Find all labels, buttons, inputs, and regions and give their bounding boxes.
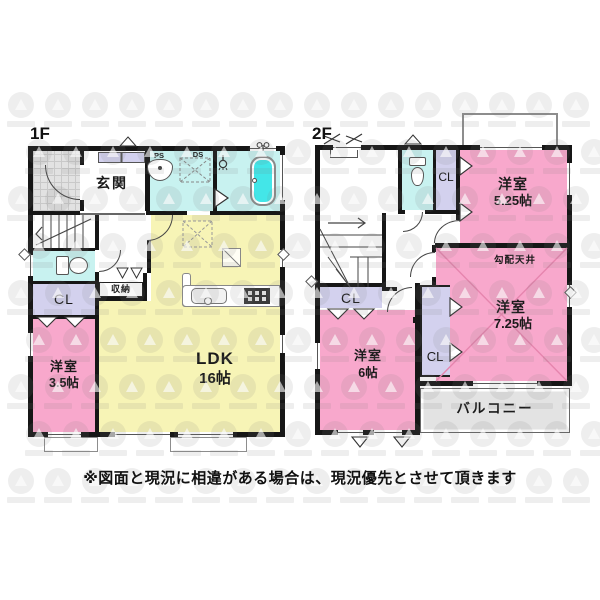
floor1-label: 1F <box>30 124 50 144</box>
room-label-ldk: LDK <box>165 350 265 368</box>
shoe-cabinet <box>98 152 145 163</box>
dashed-area <box>182 220 213 248</box>
wall <box>80 200 84 211</box>
toilet-icon <box>56 256 69 275</box>
wall <box>398 150 402 210</box>
wall <box>145 151 150 211</box>
wall <box>210 211 280 215</box>
floor2-plan: バルコニー <box>315 145 572 435</box>
terrace-outline <box>44 437 98 452</box>
room-label-western725: 洋室 <box>476 300 546 315</box>
room-size-western725: 7.25帖 <box>476 317 550 331</box>
window-notch <box>330 150 358 158</box>
washbasin-drain <box>158 166 162 170</box>
window <box>48 432 81 437</box>
ldk-room <box>151 215 280 432</box>
vent-triangle <box>405 135 421 144</box>
room-label-western525: 洋室 <box>478 177 548 192</box>
window <box>374 430 402 435</box>
room-size-western525: 5.25帖 <box>478 194 548 208</box>
wall <box>33 248 95 251</box>
wall <box>315 145 320 435</box>
room-size-ldk: 16帖 <box>165 371 265 387</box>
wall <box>147 240 151 273</box>
closet-door-mark <box>327 308 349 320</box>
storage-label: 収納 <box>101 285 141 294</box>
folding-door-icon <box>214 188 230 208</box>
wall <box>28 146 33 437</box>
wall <box>95 319 99 432</box>
floor1-plan: 収納 <box>28 146 285 437</box>
balcony-label: バルコニー <box>421 402 569 416</box>
room-label-western6: 洋室 <box>338 349 398 363</box>
sloped-ceiling-label: 勾配天井 <box>465 256 565 266</box>
window <box>567 163 572 195</box>
bath-drain-icon <box>252 178 257 183</box>
window <box>178 432 233 437</box>
door-leaf-mark <box>116 267 129 279</box>
window <box>280 155 285 200</box>
wall <box>315 430 420 435</box>
wall <box>382 213 386 287</box>
closet-door-mark <box>460 202 473 222</box>
label-ps: PS <box>146 152 172 160</box>
wall <box>99 297 147 301</box>
refrigerator-icon <box>222 248 241 267</box>
window <box>333 145 361 150</box>
wall <box>382 287 397 291</box>
window <box>28 255 33 276</box>
closet-door-mark <box>64 316 86 328</box>
terrace-outline <box>170 437 247 452</box>
wall <box>143 273 147 297</box>
wall <box>413 317 420 323</box>
floor-plan-page: 1F 2F 収納 <box>0 0 600 600</box>
wall <box>33 281 95 284</box>
sink-drain-icon <box>204 297 212 305</box>
window <box>315 343 320 369</box>
wall <box>95 215 99 250</box>
shower-icon <box>216 154 230 170</box>
toilet-icon <box>69 257 88 274</box>
closet-door-mark <box>36 316 58 328</box>
closet-door-mark <box>460 156 473 176</box>
window <box>28 333 33 356</box>
wall <box>425 210 460 214</box>
wall <box>80 151 84 165</box>
window <box>473 381 537 386</box>
balcony: バルコニー <box>420 388 570 433</box>
dashed-area <box>179 157 211 183</box>
toilet-icon <box>411 167 424 186</box>
window <box>115 432 170 437</box>
stairs-icon <box>320 213 382 287</box>
stove-icon <box>244 288 270 304</box>
door-arc <box>410 252 435 277</box>
ldk-room <box>99 301 151 432</box>
window <box>480 145 542 150</box>
shutter-mark <box>393 436 411 448</box>
floor2-label: 2F <box>312 124 332 144</box>
closet-label-2f-c: CL <box>418 350 452 364</box>
window <box>280 335 285 353</box>
door-arc <box>403 212 423 232</box>
door-leaf-mark <box>130 267 143 279</box>
window <box>338 430 363 435</box>
closet-label-2f-a: CL <box>433 171 459 184</box>
toilet-icon <box>409 157 426 166</box>
closet-door-mark <box>353 308 375 320</box>
shutter-mark <box>351 436 369 448</box>
door-arc <box>434 220 460 243</box>
roof-outline <box>462 113 558 149</box>
disclaimer-text: ※図面と現況に相違がある場合は、現況優先とさせて頂きます <box>0 467 600 488</box>
vent-triangle <box>120 137 136 146</box>
room-label-western35: 洋室 <box>34 360 94 374</box>
closet-door-mark <box>450 297 463 317</box>
faucet-icon <box>256 142 270 152</box>
room-size-western35: 3.5帖 <box>34 377 94 390</box>
x-mark <box>345 133 363 145</box>
room-size-western6: 6帖 <box>338 367 398 380</box>
room-label-genkan: 玄関 <box>82 176 142 191</box>
closet-label-1f: CL <box>34 292 94 307</box>
stairs-icon <box>33 215 95 248</box>
closet-label-2f-b: CL <box>321 291 381 306</box>
label-ds: DS <box>185 151 211 159</box>
